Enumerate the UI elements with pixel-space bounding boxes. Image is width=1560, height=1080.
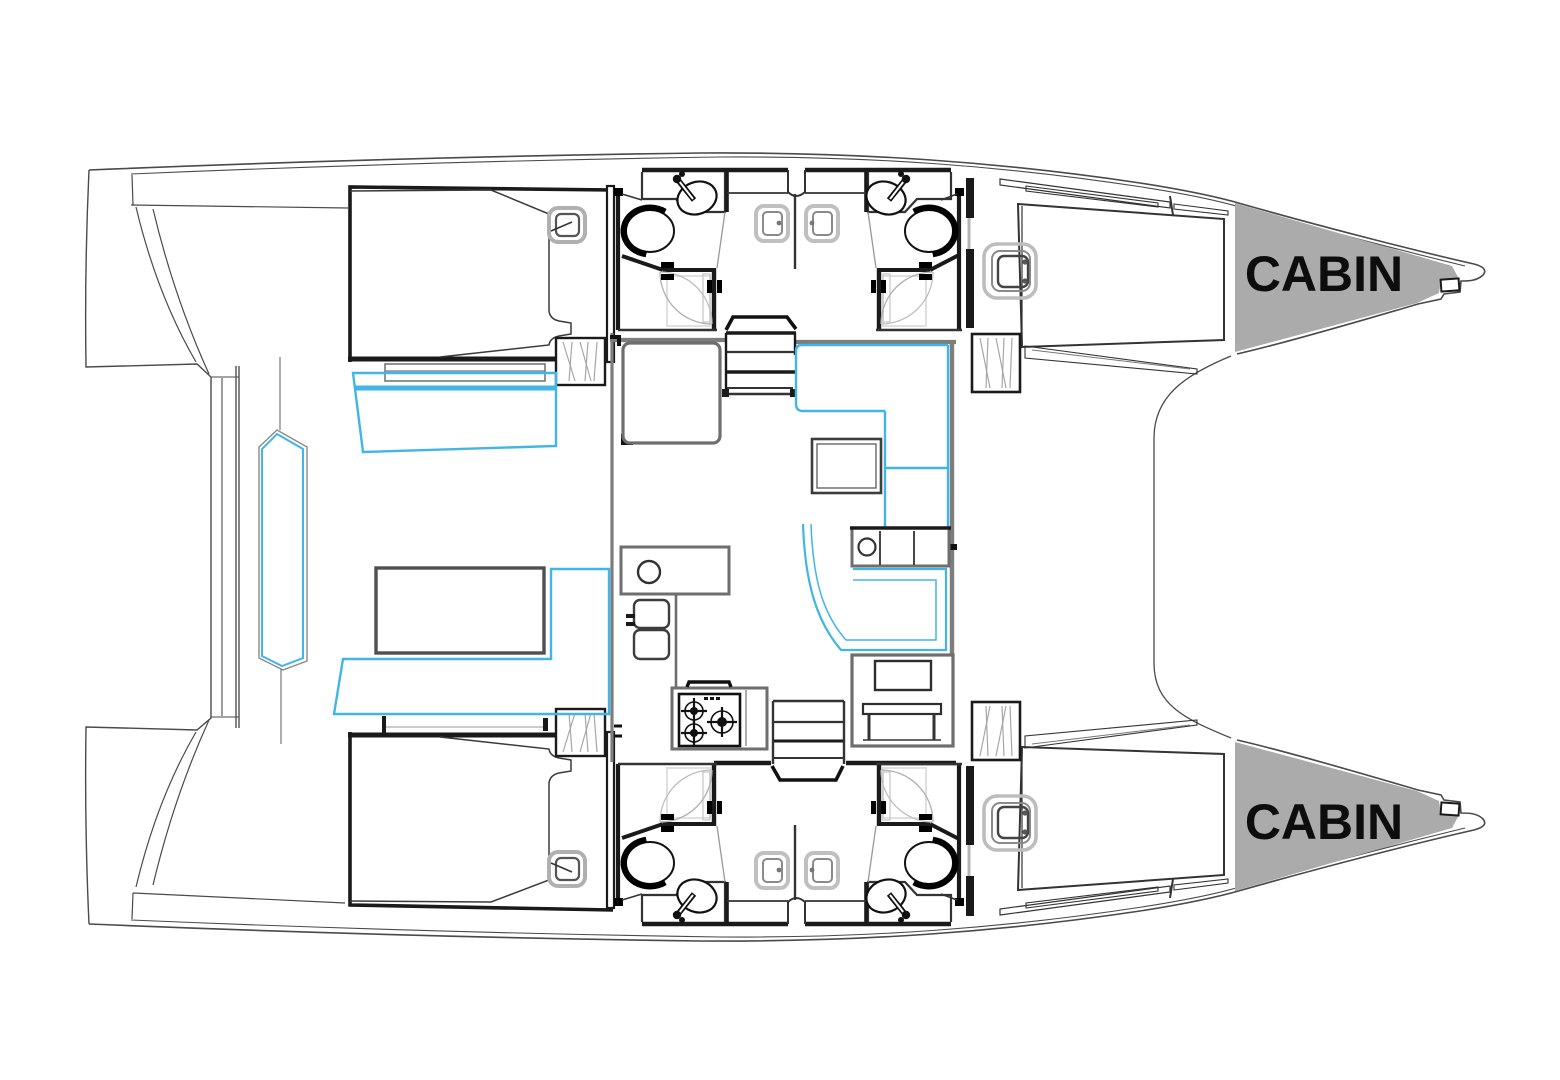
svg-text:CABIN: CABIN bbox=[1245, 794, 1403, 850]
svg-text:CABIN: CABIN bbox=[1245, 246, 1403, 302]
